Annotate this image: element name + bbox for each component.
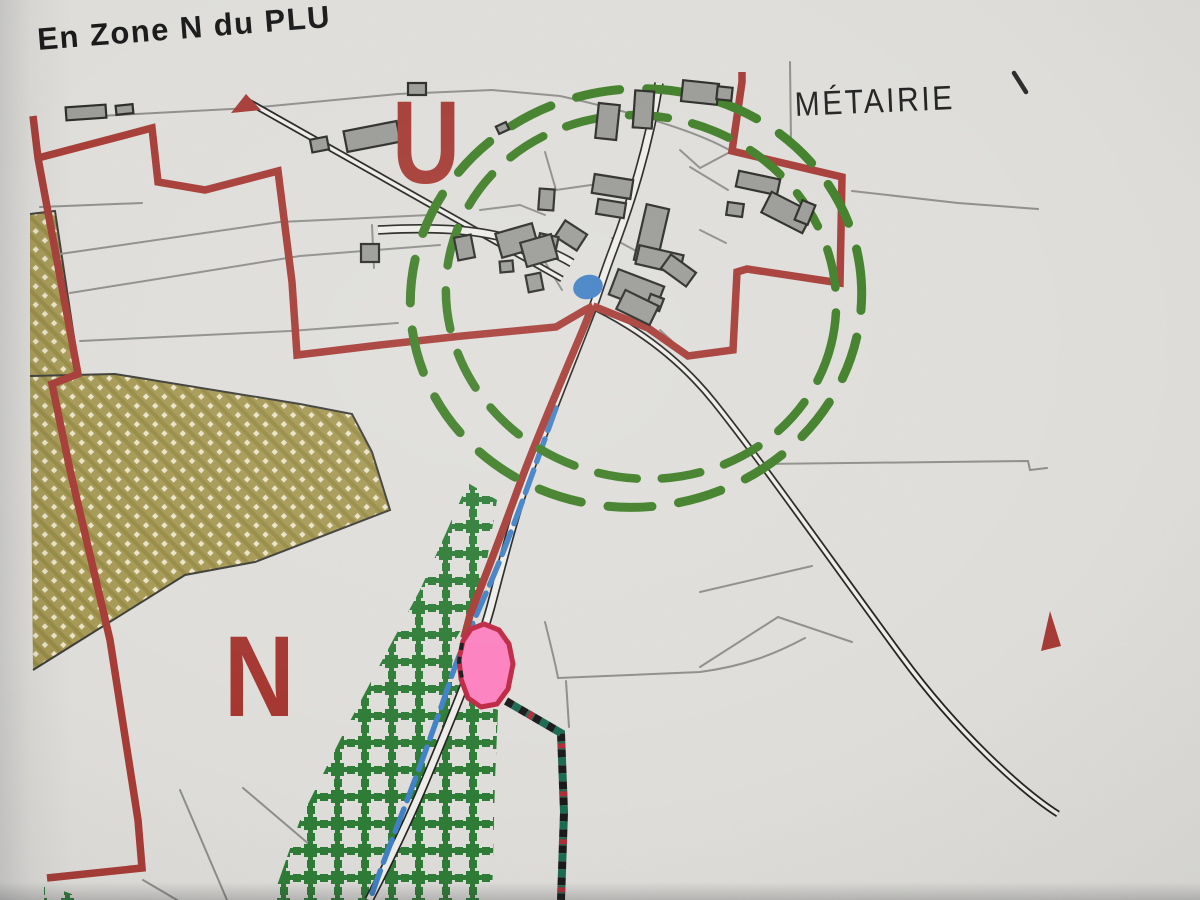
plu-map-canvas [0, 0, 1200, 900]
plu-map-photo: En Zone N du PLU MÉTAIRIE U N [0, 0, 1200, 900]
metairie-label: MÉTAIRIE [794, 79, 956, 125]
zone-n-letter: N [224, 620, 295, 735]
zone-u-letter: U [392, 84, 460, 202]
paper-grain-texture [0, 0, 1200, 900]
